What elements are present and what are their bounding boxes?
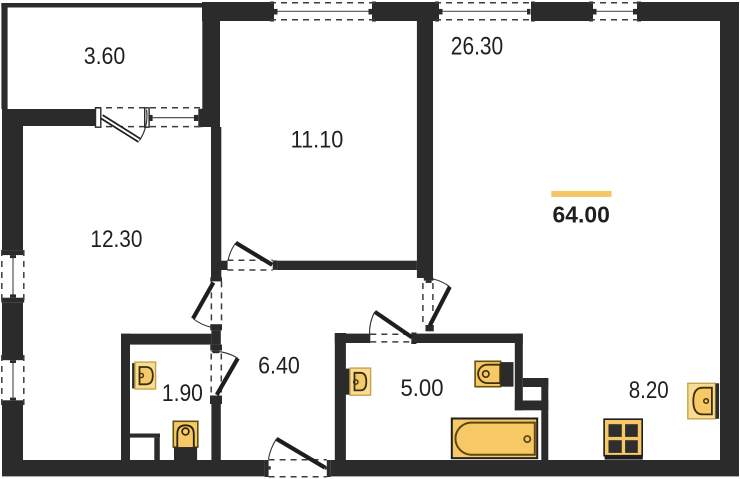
svg-text:5.00: 5.00 bbox=[401, 375, 444, 402]
svg-text:64.00: 64.00 bbox=[553, 202, 610, 228]
svg-text:26.30: 26.30 bbox=[451, 32, 503, 60]
svg-text:3.60: 3.60 bbox=[84, 43, 126, 70]
svg-text:12.30: 12.30 bbox=[90, 226, 142, 253]
svg-text:1.90: 1.90 bbox=[162, 380, 203, 407]
svg-text:8.20: 8.20 bbox=[629, 377, 669, 404]
svg-text:6.40: 6.40 bbox=[258, 353, 300, 380]
svg-text:11.10: 11.10 bbox=[291, 127, 344, 154]
